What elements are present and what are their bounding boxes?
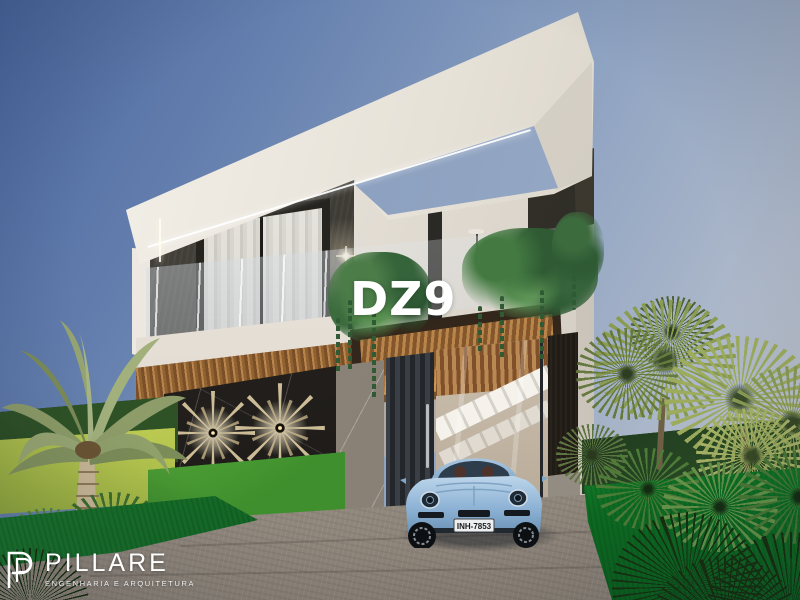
vine-strand [336,318,340,373]
car-wheel-right [513,522,539,548]
logo-name: PILLARE [45,551,195,576]
vine-strand [572,268,576,310]
brand-logo: PILLARE ENGENHARIA E ARQUITETURA [4,549,195,589]
license-plate-text: INH-7853 [457,522,492,531]
vine-strand [540,290,544,362]
vine-strand [478,306,482,352]
architectural-render-scene: INH-7853 DZ9 PILLARE ENGENHARIA E ARQUIT… [0,0,800,600]
sports-car: INH-7853 [398,436,550,548]
car-intake [458,510,490,517]
car-intake [504,510,530,516]
palm-tree-right [576,328,678,420]
hanging-plants [552,212,604,286]
logo-monogram-icon [4,549,40,589]
vine-strand [500,296,504,358]
column-led-strip [159,218,161,262]
watermark-text: DZ9 [350,272,457,326]
logo-tagline: ENGENHARIA E ARQUITETURA [45,579,195,588]
car-intake [418,512,444,518]
pendant-light-shade [468,229,484,234]
